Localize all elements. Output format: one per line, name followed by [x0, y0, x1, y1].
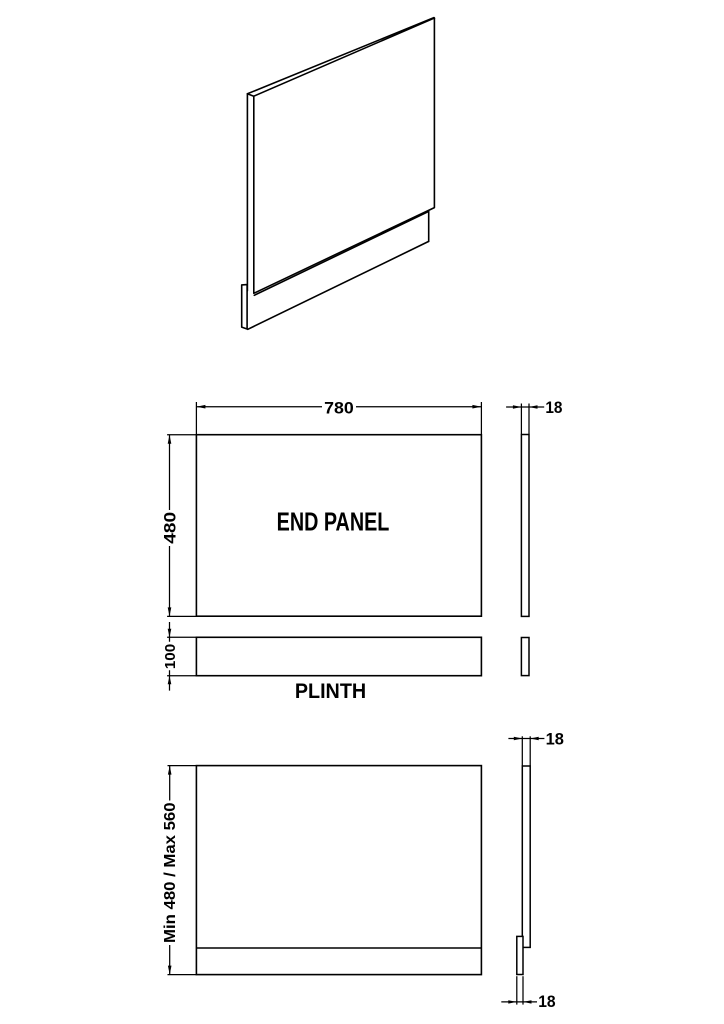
svg-text:780: 780 [324, 398, 354, 417]
svg-text:18: 18 [546, 731, 564, 749]
svg-text:100: 100 [162, 644, 179, 669]
svg-text:PLINTH: PLINTH [295, 679, 366, 703]
svg-text:END PANEL: END PANEL [277, 507, 390, 537]
svg-text:18: 18 [545, 399, 562, 417]
svg-text:480: 480 [161, 512, 180, 544]
svg-text:18: 18 [538, 993, 555, 1011]
svg-text:Min 480 / Max 560: Min 480 / Max 560 [162, 802, 179, 943]
